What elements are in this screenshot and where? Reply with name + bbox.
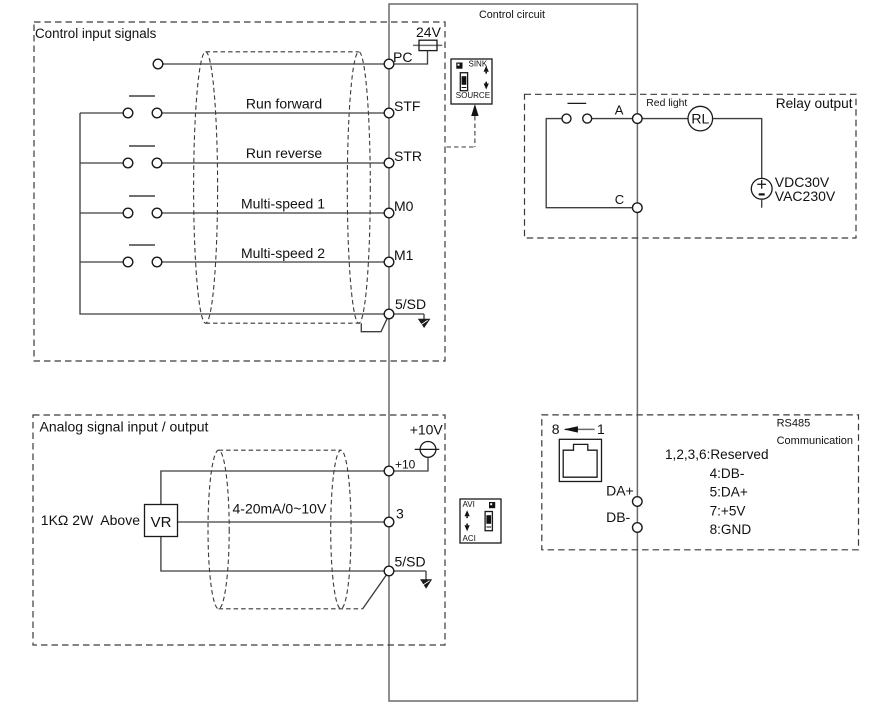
- svg-text:SINK: SINK: [469, 60, 488, 69]
- svg-text:Relay output: Relay output: [776, 96, 853, 111]
- svg-text:VR: VR: [151, 514, 172, 531]
- svg-text:8:GND: 8:GND: [710, 522, 752, 537]
- svg-text:Control circuit: Control circuit: [479, 9, 545, 21]
- svg-text:Multi-speed 2: Multi-speed 2: [241, 245, 325, 261]
- svg-text:STF: STF: [394, 98, 420, 114]
- svg-text:Run reverse: Run reverse: [246, 145, 322, 161]
- svg-text:SOURCE: SOURCE: [456, 91, 490, 100]
- svg-text:Multi-speed 1: Multi-speed 1: [241, 196, 325, 212]
- svg-text:Analog signal input / output: Analog signal input / output: [40, 419, 209, 435]
- svg-text:AVI: AVI: [463, 500, 475, 509]
- svg-text:8: 8: [552, 421, 560, 437]
- svg-text:C: C: [615, 192, 624, 207]
- svg-text:ACI: ACI: [463, 534, 476, 543]
- svg-text:VAC230V: VAC230V: [775, 188, 836, 204]
- svg-text:PC: PC: [393, 49, 412, 65]
- svg-text:+10V: +10V: [410, 422, 444, 438]
- svg-text:Run forward: Run forward: [246, 96, 322, 112]
- svg-text:+10: +10: [395, 458, 416, 472]
- svg-text:RL: RL: [691, 111, 709, 127]
- svg-text:5/SD: 5/SD: [395, 296, 426, 312]
- svg-text:Red light: Red light: [646, 98, 687, 109]
- svg-text:STR: STR: [394, 148, 422, 164]
- svg-text:7:+5V: 7:+5V: [710, 503, 746, 518]
- svg-text:3: 3: [396, 506, 404, 522]
- svg-text:4:DB-: 4:DB-: [710, 466, 745, 481]
- svg-text:DB-: DB-: [606, 509, 630, 525]
- svg-text:5:DA+: 5:DA+: [710, 485, 748, 500]
- svg-text:A: A: [615, 103, 624, 118]
- svg-text:5/SD: 5/SD: [395, 554, 426, 570]
- svg-text:M0: M0: [394, 198, 414, 214]
- svg-text:RS485: RS485: [777, 418, 811, 430]
- svg-text:DA+: DA+: [606, 482, 634, 498]
- svg-text:M1: M1: [394, 247, 414, 263]
- svg-text:1,2,3,6:Reserved: 1,2,3,6:Reserved: [665, 447, 769, 462]
- svg-text:Control input signals: Control input signals: [35, 26, 157, 41]
- svg-text:4-20mA/0~10V: 4-20mA/0~10V: [233, 501, 327, 517]
- svg-text:24V: 24V: [416, 24, 442, 40]
- svg-text:1: 1: [597, 421, 605, 437]
- svg-text:Communication: Communication: [777, 435, 853, 447]
- svg-text:1KΩ 2W Above: 1KΩ 2W Above: [41, 512, 140, 528]
